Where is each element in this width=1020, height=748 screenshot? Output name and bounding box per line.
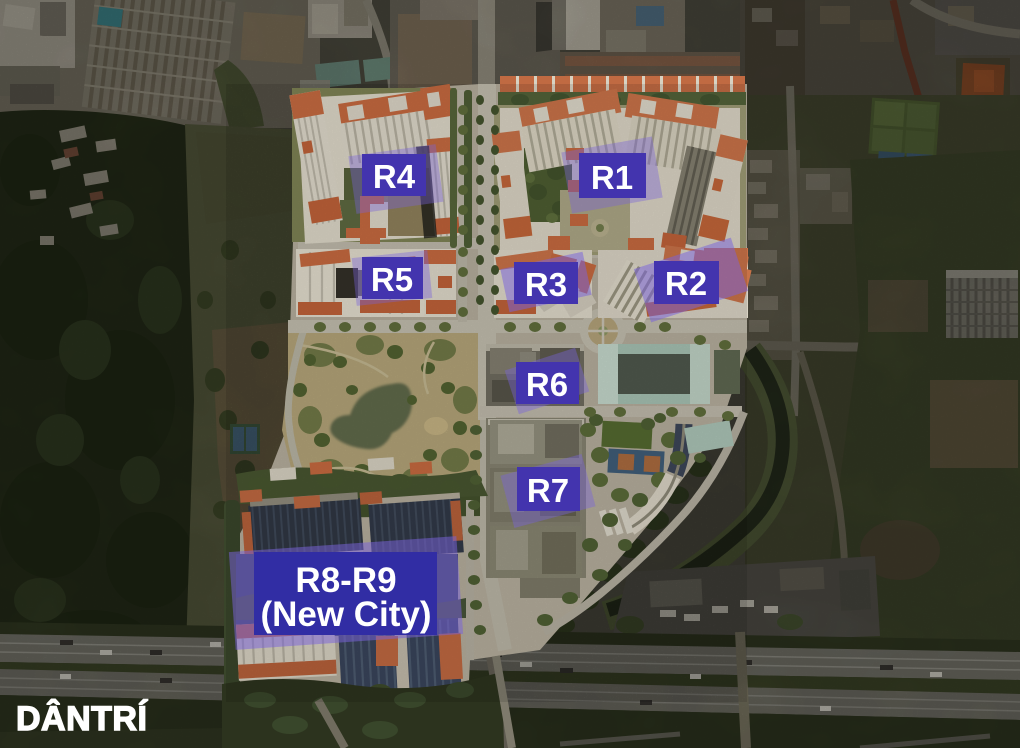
svg-text:R4: R4 <box>373 158 416 195</box>
svg-text:DÂNTRÍ: DÂNTRÍ <box>16 700 148 738</box>
svg-text:R1: R1 <box>591 159 633 196</box>
svg-text:R5: R5 <box>371 261 413 298</box>
svg-text:R2: R2 <box>665 265 707 302</box>
svg-text:R7: R7 <box>527 472 569 509</box>
svg-text:R3: R3 <box>525 266 567 303</box>
svg-text:(New City): (New City) <box>260 595 431 634</box>
svg-text:R6: R6 <box>526 366 568 403</box>
